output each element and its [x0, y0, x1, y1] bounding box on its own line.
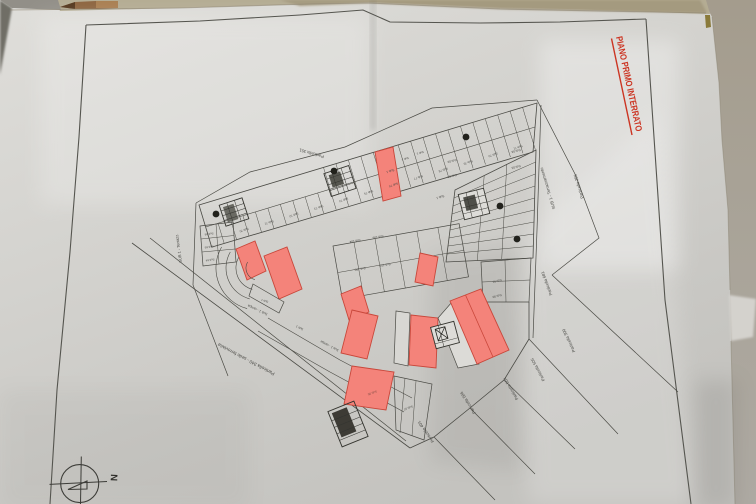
- svg-text:N: N: [108, 474, 119, 482]
